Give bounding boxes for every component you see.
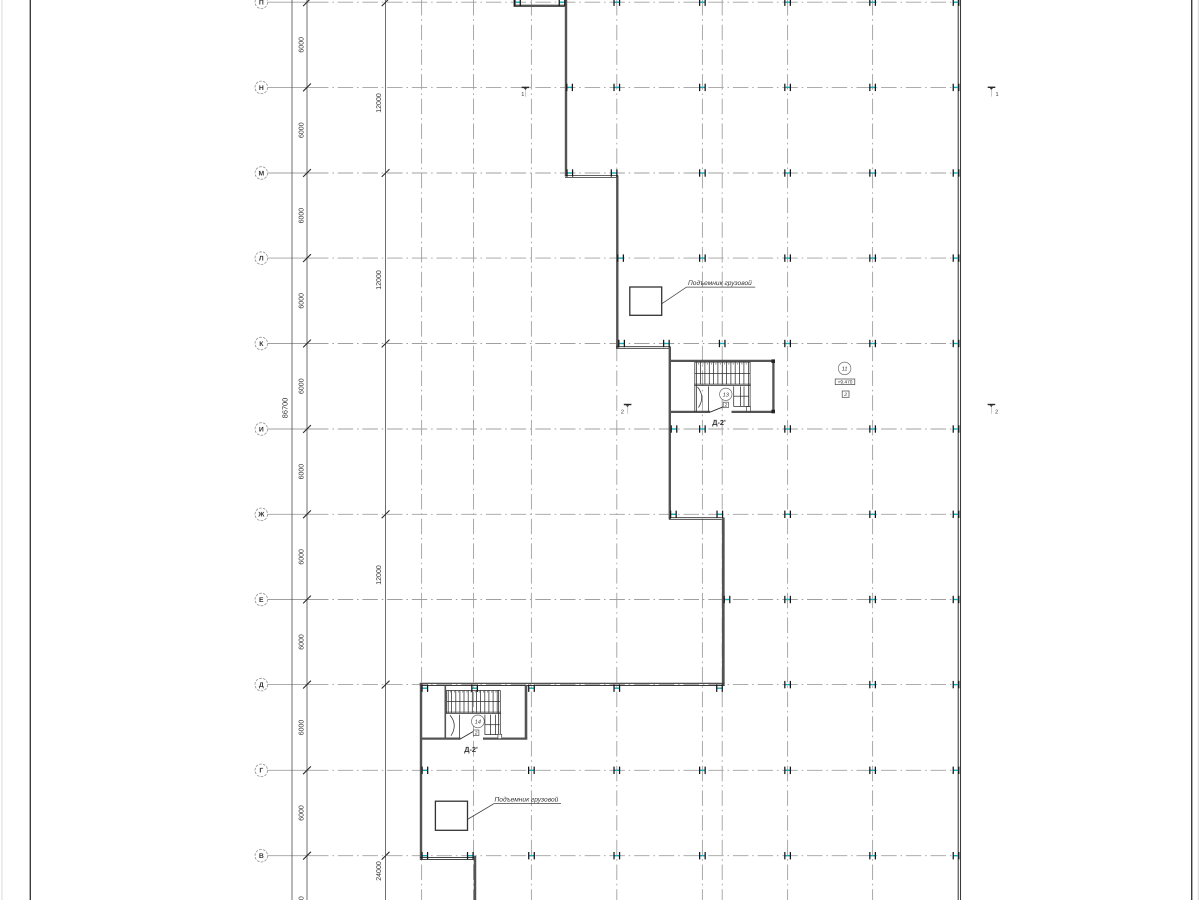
- svg-text:6000: 6000: [299, 293, 306, 309]
- svg-text:Д-2': Д-2': [712, 418, 726, 427]
- svg-text:13: 13: [723, 392, 730, 398]
- svg-text:11: 11: [842, 367, 848, 373]
- svg-text:6000: 6000: [299, 720, 306, 736]
- svg-text:Подъемник грузовой: Подъемник грузовой: [495, 797, 559, 804]
- svg-text:6000: 6000: [299, 805, 306, 821]
- svg-text:2: 2: [724, 402, 728, 407]
- svg-text:24000: 24000: [376, 861, 383, 881]
- svg-text:Д: Д: [259, 682, 264, 689]
- svg-text:1: 1: [996, 92, 999, 98]
- svg-text:2: 2: [474, 730, 478, 735]
- svg-text:2: 2: [843, 392, 847, 398]
- svg-text:П: П: [259, 0, 264, 7]
- svg-text:86700: 86700: [280, 398, 289, 419]
- svg-text:1: 1: [521, 92, 524, 98]
- svg-text:Подъемник грузовой: Подъемник грузовой: [688, 280, 752, 287]
- svg-text:Г: Г: [259, 768, 263, 775]
- svg-text:6000: 6000: [299, 464, 306, 480]
- svg-text:2: 2: [621, 410, 624, 416]
- svg-text:6000: 6000: [299, 634, 306, 650]
- svg-text:Е: Е: [259, 597, 264, 604]
- svg-text:6000: 6000: [299, 122, 306, 138]
- svg-text:6000: 6000: [299, 37, 306, 53]
- svg-text:6000: 6000: [299, 549, 306, 565]
- svg-text:2: 2: [995, 409, 998, 415]
- svg-text:Ж: Ж: [257, 512, 265, 519]
- svg-text:6000: 6000: [299, 378, 306, 394]
- svg-text:14: 14: [475, 720, 481, 726]
- svg-text:12000: 12000: [376, 93, 383, 113]
- svg-text:6000: 6000: [299, 896, 306, 900]
- svg-text:И: И: [259, 426, 264, 433]
- svg-text:Л: Л: [259, 256, 264, 263]
- svg-text:+9.470: +9.470: [838, 379, 853, 385]
- svg-text:6000: 6000: [299, 208, 306, 224]
- svg-text:12000: 12000: [376, 270, 383, 290]
- svg-text:М: М: [258, 170, 264, 177]
- svg-text:В: В: [259, 853, 264, 860]
- svg-text:12000: 12000: [376, 565, 383, 585]
- svg-text:Н: Н: [259, 85, 264, 92]
- svg-text:Д-2': Д-2': [464, 745, 478, 754]
